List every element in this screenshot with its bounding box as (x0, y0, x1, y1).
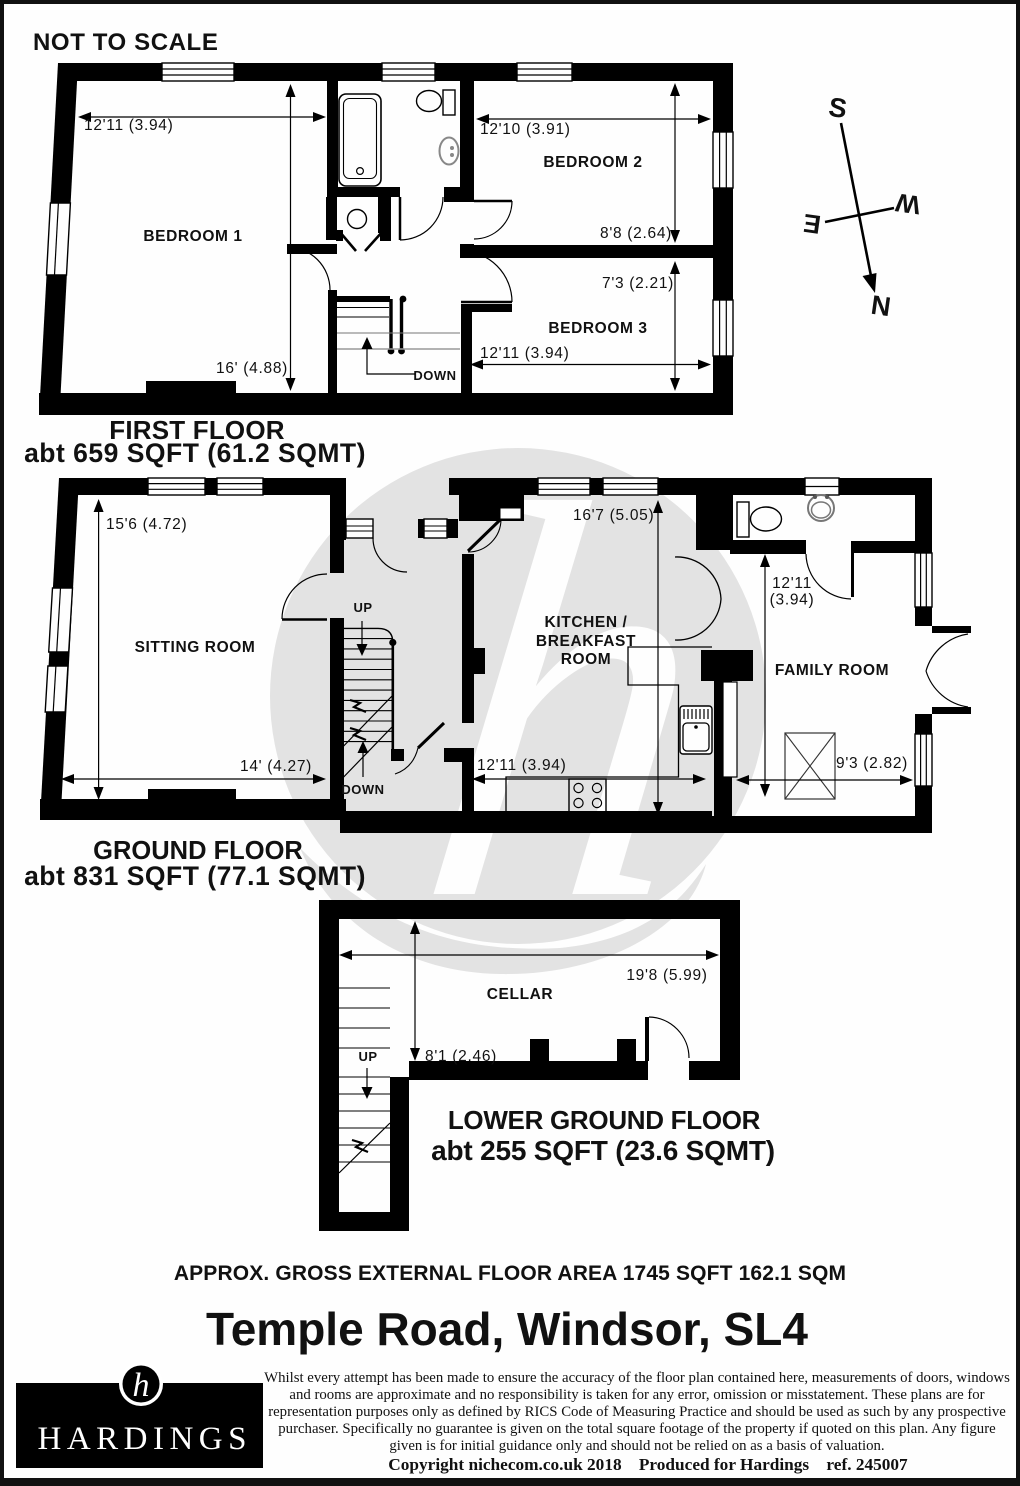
svg-text:KITCHEN /: KITCHEN / (545, 614, 628, 631)
svg-text:BEDROOM 3: BEDROOM 3 (548, 320, 647, 337)
svg-text:and rooms are approximate and: and rooms are approximate and no respons… (289, 1387, 984, 1403)
svg-text:BEDROOM 2: BEDROOM 2 (543, 154, 642, 171)
svg-text:12'11: 12'11 (772, 575, 812, 592)
svg-text:FAMILY ROOM: FAMILY ROOM (775, 662, 889, 679)
svg-text:LOWER GROUND FLOOR: LOWER GROUND FLOOR (448, 1105, 761, 1135)
svg-text:Whilst every attempt has been: Whilst every attempt has been made to en… (264, 1370, 1010, 1386)
svg-text:HARDINGS: HARDINGS (38, 1421, 247, 1457)
svg-text:8'8 (2.64): 8'8 (2.64) (600, 225, 672, 242)
svg-text:NOT TO SCALE: NOT TO SCALE (33, 29, 218, 56)
svg-text:DOWN: DOWN (341, 782, 384, 797)
svg-text:12'11 (3.94): 12'11 (3.94) (84, 117, 174, 134)
svg-text:12'11 (3.94): 12'11 (3.94) (477, 757, 567, 774)
svg-text:APPROX. GROSS EXTERNAL FLOOR A: APPROX. GROSS EXTERNAL FLOOR AREA 1745 S… (174, 1262, 846, 1285)
svg-text:UP: UP (353, 600, 372, 615)
svg-text:abt 659 SQFT (61.2 SQMT): abt 659 SQFT (61.2 SQMT) (24, 438, 366, 468)
svg-text:W: W (893, 187, 922, 220)
svg-text:8'1 (2.46): 8'1 (2.46) (425, 1048, 497, 1065)
svg-text:Temple Road, Windsor, SL4: Temple Road, Windsor, SL4 (206, 1303, 808, 1355)
svg-text:12'10 (3.91): 12'10 (3.91) (480, 121, 571, 138)
svg-text:12'11 (3.94): 12'11 (3.94) (480, 345, 570, 362)
svg-text:abt 831 SQFT (77.1 SQMT): abt 831 SQFT (77.1 SQMT) (24, 861, 366, 891)
svg-text:purchaser. Specifically no gu: purchaser. Specifically no guarantee is … (278, 1421, 996, 1437)
svg-text:SITTING ROOM: SITTING ROOM (135, 639, 256, 656)
svg-text:19'8 (5.99): 19'8 (5.99) (626, 967, 707, 984)
svg-text:h: h (133, 1367, 150, 1404)
svg-text:14' (4.27): 14' (4.27) (240, 758, 312, 775)
svg-text:BREAKFAST: BREAKFAST (536, 633, 636, 650)
svg-text:BEDROOM 1: BEDROOM 1 (143, 228, 242, 245)
svg-text:15'6 (4.72): 15'6 (4.72) (106, 516, 187, 533)
svg-text:16' (4.88): 16' (4.88) (216, 360, 288, 377)
svg-text:representation purposes only a: representation purposes only as defined … (268, 1404, 1006, 1420)
svg-text:16'7 (5.05): 16'7 (5.05) (573, 507, 654, 524)
svg-text:abt 255 SQFT (23.6 SQMT): abt 255 SQFT (23.6 SQMT) (431, 1135, 775, 1166)
svg-text:UP: UP (358, 1049, 377, 1064)
svg-text:7'3 (2.21): 7'3 (2.21) (602, 275, 674, 292)
svg-text:given is for initial guidance: given is for initial guidance only and s… (389, 1438, 884, 1454)
svg-text:DOWN: DOWN (413, 368, 456, 383)
svg-text:Copyright nichecom.co.uk 2018: Copyright nichecom.co.uk 2018 Produced f… (388, 1455, 908, 1474)
svg-text:9'3 (2.82): 9'3 (2.82) (836, 755, 908, 772)
svg-text:(3.94): (3.94) (770, 592, 815, 609)
svg-text:CELLAR: CELLAR (487, 986, 553, 1003)
svg-text:ROOM: ROOM (561, 651, 612, 668)
svg-text:N: N (869, 290, 892, 322)
